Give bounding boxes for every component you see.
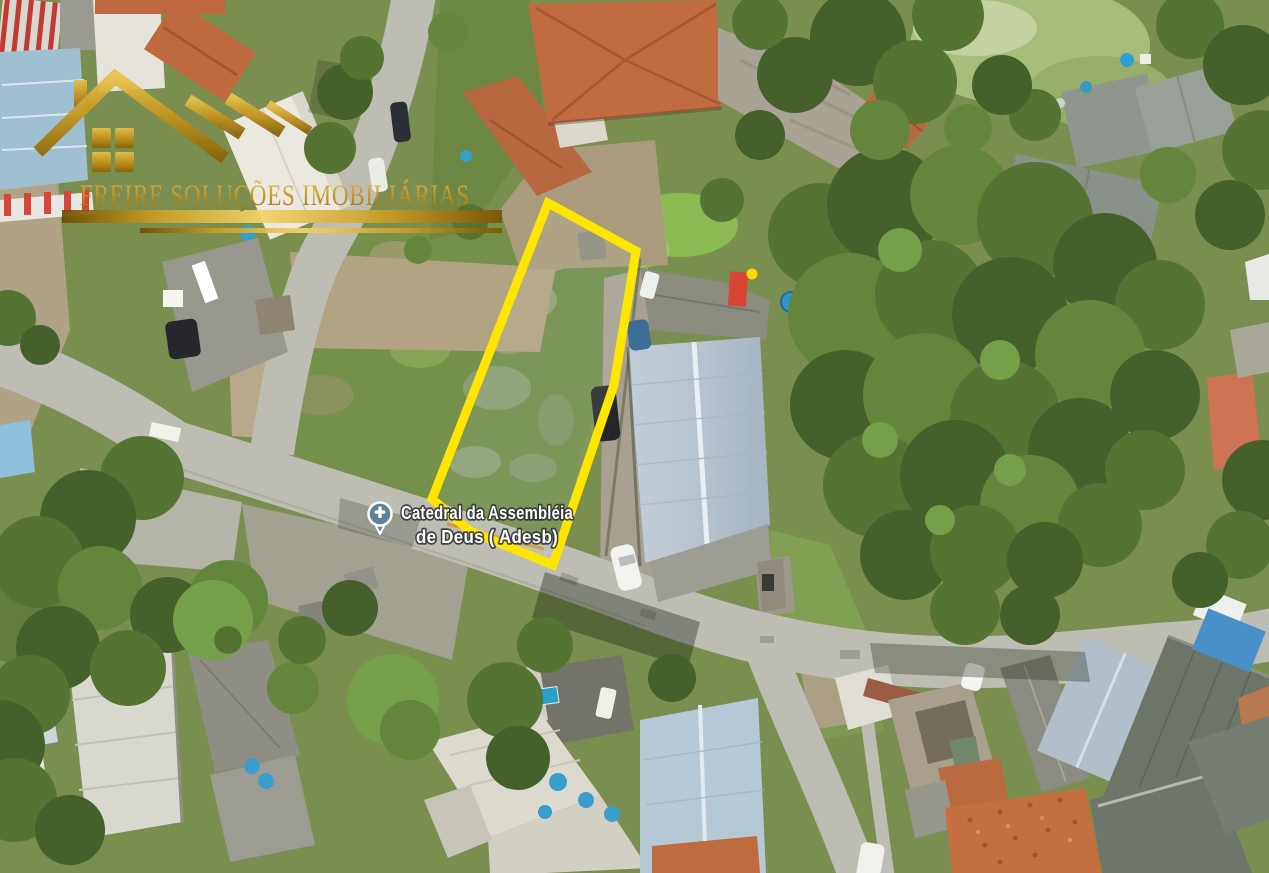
place-label-line1: Catedral da Assembléia — [401, 502, 573, 523]
place-label-line2: de Deus ( Adesb) — [416, 526, 558, 547]
aerial-photo-canvas: Catedral da Assembléia de Deus ( Adesb) … — [0, 0, 1269, 873]
red-tarp — [728, 271, 748, 306]
satellite-map-view[interactable]: Catedral da Assembléia de Deus ( Adesb) … — [0, 0, 1269, 873]
watermark-underline-thin — [140, 228, 502, 233]
company-name: FREIRE SOLUÇÕES IMOBILIÁRIAS — [80, 179, 470, 212]
parcel-marker-dot — [747, 269, 758, 280]
